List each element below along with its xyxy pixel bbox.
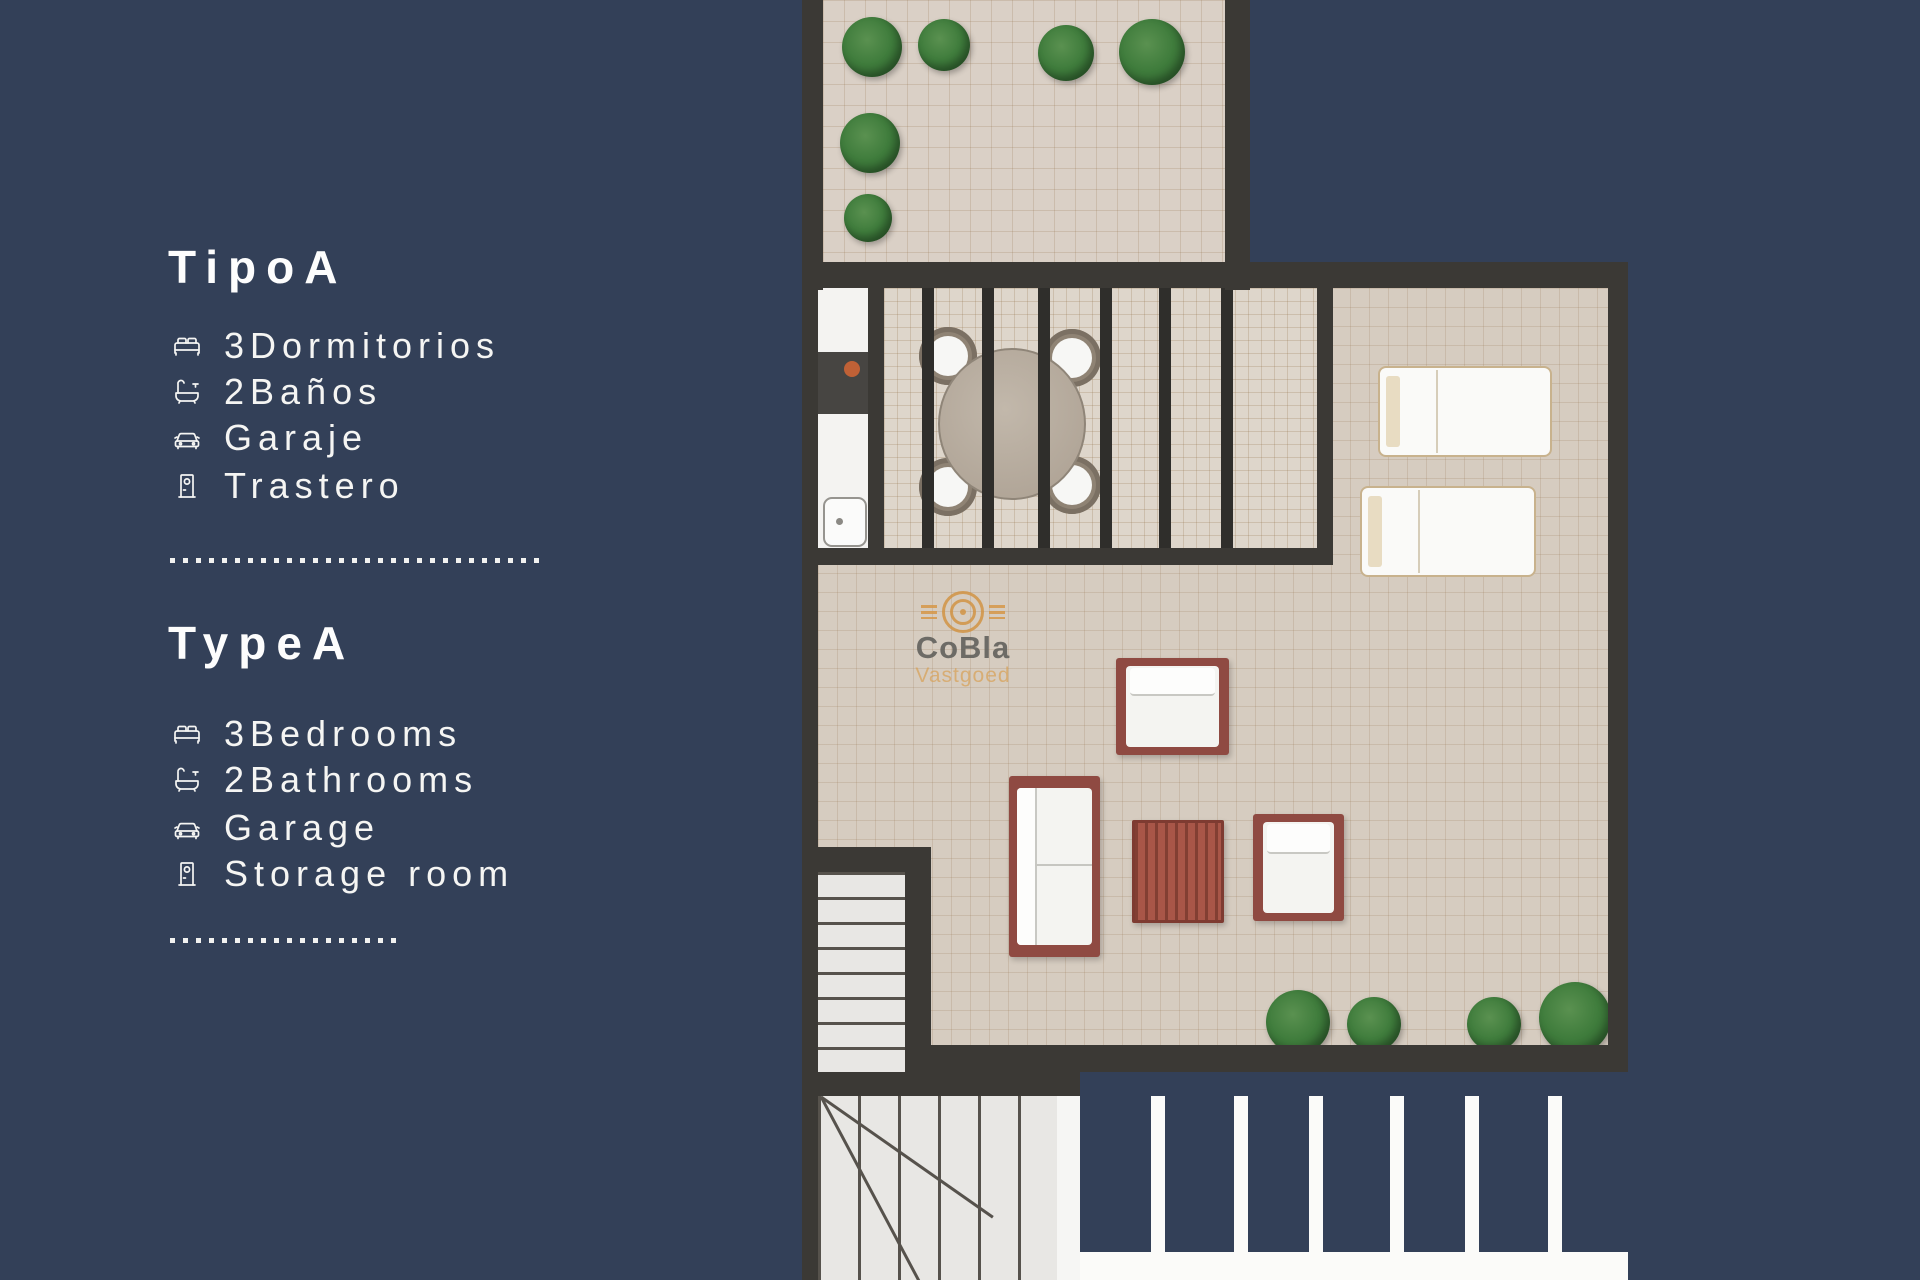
wall-kitchen-side [868, 288, 884, 565]
kitchen-sink [823, 497, 867, 547]
carport-beam [1390, 1096, 1404, 1252]
feature-row-bathrooms: 2Bathrooms [170, 757, 478, 803]
bath-icon [170, 375, 204, 409]
outdoor-kitchen-counter [818, 288, 868, 548]
feature-label: Storage room [224, 853, 514, 895]
carport-beam [1234, 1096, 1248, 1252]
logo-ring-core [960, 609, 966, 615]
wall-right-main [1608, 265, 1628, 1072]
feature-row-banos: 2Baños [170, 369, 382, 415]
winder-step-line [820, 1097, 921, 1280]
terrace-plant [1347, 997, 1401, 1051]
terrace-plant [1467, 997, 1521, 1051]
car-icon [170, 811, 204, 845]
logo-stripes-left [921, 605, 937, 619]
carport-area [1080, 1072, 1628, 1280]
cooktop-section [818, 352, 868, 414]
cobla-arcs-logo [888, 592, 1038, 632]
feature-row-trastero: Trastero [170, 463, 405, 509]
logo-ring-outer [942, 591, 984, 633]
pergola-slat [1100, 288, 1112, 548]
armchair-back [1130, 668, 1215, 696]
wall-terrace-left [802, 0, 823, 290]
sofa [1009, 776, 1100, 957]
carport-beam [1151, 1096, 1165, 1252]
staircase-lower-flight [818, 1096, 1057, 1280]
wall-terrace-right [1225, 0, 1250, 290]
pergola-slat [1221, 288, 1233, 548]
feature-label: Garage [224, 807, 380, 849]
title-es: TipoA [168, 244, 347, 290]
brochure-page: TipoA 3Dormitorios 2Baños Garaje Traster… [0, 0, 1920, 1280]
terrace-plant [842, 17, 902, 77]
sofa-backrest [1017, 788, 1037, 945]
round-dining-table [938, 348, 1086, 500]
carport-front-kerb [1080, 1252, 1628, 1280]
feature-row-dormitorios: 3Dormitorios [170, 323, 500, 369]
logo-ring-mid [950, 599, 976, 625]
pergola-slat [1159, 288, 1171, 548]
sink-drain [836, 518, 843, 525]
bath-icon [170, 763, 204, 797]
feature-row-garage: Garage [170, 805, 380, 851]
coffee-table [1132, 820, 1224, 923]
staircase-upper-flight [818, 872, 905, 1072]
stair-edge-strip [1057, 1072, 1080, 1280]
terrace-plant [840, 113, 900, 173]
lounger-fold-line [1418, 490, 1420, 573]
feature-row-storage: Storage room [170, 851, 514, 897]
sun-lounger [1360, 486, 1536, 577]
pergola-slat [1038, 288, 1050, 548]
wall-top-main [802, 262, 1628, 288]
door-icon [170, 469, 204, 503]
lounger-fold-line [1436, 370, 1438, 453]
pergola-post [1317, 288, 1333, 565]
feature-label: Garaje [224, 417, 368, 459]
wall-left-main [802, 288, 818, 1280]
watermark-sub: Vastgoed [888, 665, 1038, 686]
carport-beam [1548, 1096, 1562, 1252]
burner-knob [844, 361, 860, 377]
feature-label: 3Dormitorios [224, 325, 500, 367]
terrace-plant [1119, 19, 1185, 85]
pergola-slat [922, 288, 934, 548]
feature-label: Trastero [224, 465, 405, 507]
dotted-divider-1 [170, 558, 540, 563]
bed-icon [170, 717, 204, 751]
armchair-back [1267, 824, 1330, 854]
feature-row-garaje: Garaje [170, 415, 368, 461]
terrace-plant [844, 194, 892, 242]
carport-beam [1465, 1096, 1479, 1252]
winder-step-line [820, 1096, 994, 1218]
wall-stair-mid [802, 1072, 1080, 1096]
title-en: TypeA [168, 620, 355, 666]
carport-beam [1309, 1096, 1323, 1252]
armchair [1253, 814, 1344, 921]
wall-bottom [905, 1045, 1628, 1072]
pergola-slat [982, 288, 994, 548]
sun-lounger [1378, 366, 1552, 457]
pergola-rail [818, 548, 1333, 565]
feature-label: 3Bedrooms [224, 713, 462, 755]
terrace-plant [918, 19, 970, 71]
lounger-headrest [1386, 376, 1400, 447]
logo-stripes-right [989, 605, 1005, 619]
dotted-divider-2 [170, 938, 402, 943]
watermark: CoBla Vastgoed [888, 592, 1038, 686]
terrace-plant [1038, 25, 1094, 81]
feature-label: 2Baños [224, 371, 382, 413]
terrace-plant [1539, 982, 1611, 1054]
feature-row-bedrooms: 3Bedrooms [170, 711, 462, 757]
door-icon [170, 857, 204, 891]
car-icon [170, 421, 204, 455]
lounger-headrest [1368, 496, 1382, 567]
bed-icon [170, 329, 204, 363]
sofa-seat-divider [1035, 864, 1092, 866]
watermark-brand: CoBla [888, 632, 1038, 663]
armchair [1116, 658, 1229, 755]
feature-label: 2Bathrooms [224, 759, 478, 801]
